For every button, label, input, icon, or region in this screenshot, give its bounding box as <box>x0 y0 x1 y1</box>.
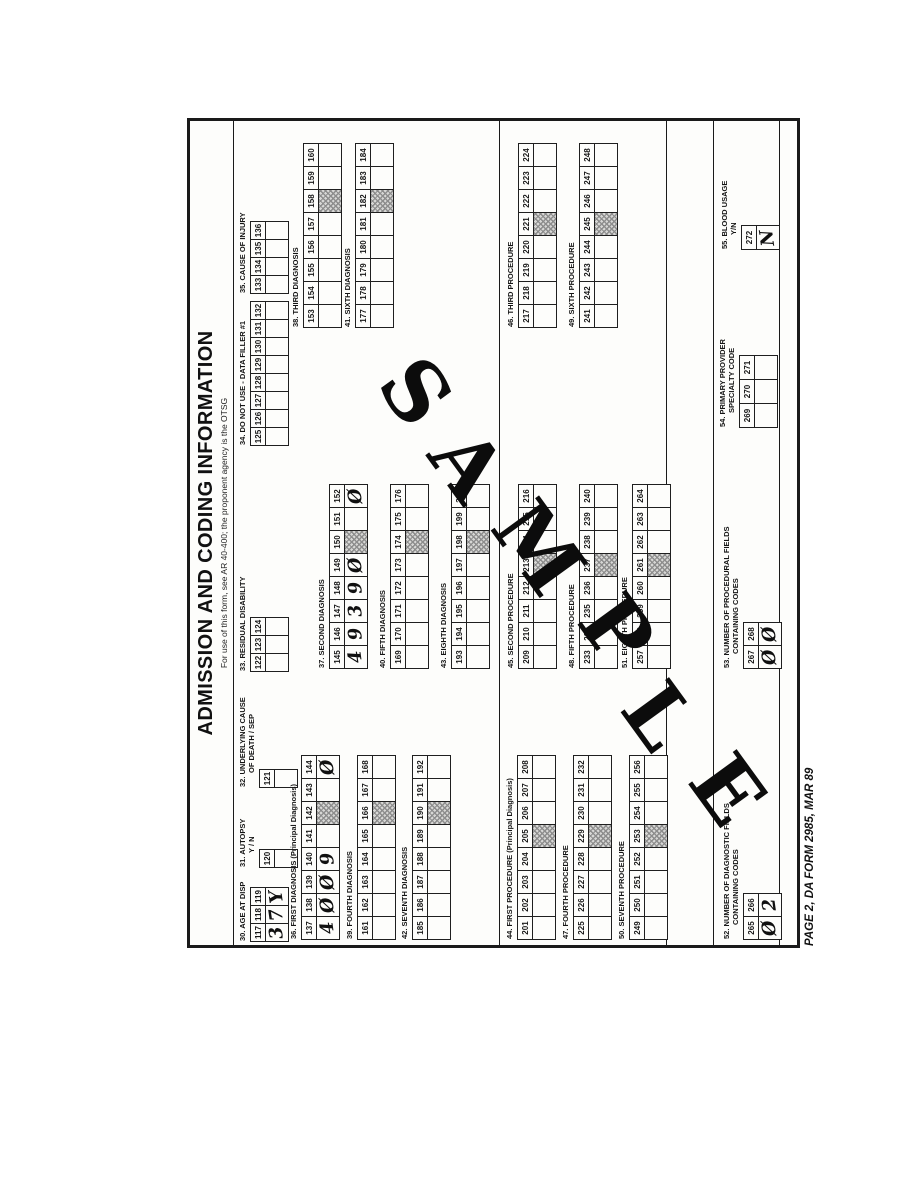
cell-170: 170 <box>390 622 429 646</box>
cell-246-entry <box>594 189 618 213</box>
cell-263-number: 263 <box>632 507 648 531</box>
cell-269-entry <box>754 403 778 428</box>
cell-227-entry <box>588 870 612 894</box>
block-39-label: 39. FOURTH DIAGNOSIS <box>345 755 354 939</box>
cell-137: 1374 <box>301 916 340 940</box>
cell-179: 179 <box>355 258 394 282</box>
cell-151: 151 <box>329 507 368 531</box>
cell-160-number: 160 <box>303 143 319 167</box>
block-39-cells: 161162163164165166167168 <box>357 755 396 939</box>
cell-134-number: 134 <box>250 257 266 276</box>
block-31-label-line2: Y / N <box>247 819 256 853</box>
cell-136-entry <box>265 221 289 240</box>
block-54-label-line2: SPECIALTY CODE <box>727 339 736 413</box>
cell-202-entry <box>532 893 556 917</box>
block-38-label: 38. THIRD DIAGNOSIS <box>291 143 300 327</box>
scanned-form-page: ADMISSION AND CODING INFORMATION For use… <box>0 0 918 1188</box>
cell-209-entry <box>533 645 557 669</box>
block-53-label: 53. NUMBER OF PROCEDURAL FIELDS <box>722 526 731 668</box>
cell-137-number: 137 <box>301 916 317 940</box>
cell-144-entry: Ø <box>316 755 340 779</box>
cell-251: 251 <box>629 870 668 894</box>
block-47: 47. FOURTH PROCEDURE22522622722822923023… <box>561 755 612 939</box>
cell-254-number: 254 <box>629 801 645 825</box>
cell-223-number: 223 <box>518 166 534 190</box>
cell-231: 231 <box>573 778 612 802</box>
block-52-cells: 265Ø2662 <box>743 803 782 939</box>
cell-206-entry <box>532 801 556 825</box>
cell-139-entry: Ø <box>316 870 340 894</box>
cell-117: 1173 <box>250 923 289 942</box>
cell-180-entry <box>370 235 394 259</box>
block-36-label: 36. FIRST DIAGNOSIS (Principal Diagnosis… <box>289 755 298 939</box>
block-38-cells: 153154155156157158159160 <box>303 143 342 327</box>
cell-167: 167 <box>357 778 396 802</box>
cell-250-number: 250 <box>629 893 645 917</box>
cell-224-number: 224 <box>518 143 534 167</box>
cell-148: 1489 <box>329 576 368 600</box>
block-38: 38. THIRD DIAGNOSIS153154155156157158159… <box>291 143 342 327</box>
cell-261-entry-hatched <box>647 553 671 577</box>
cell-209-number: 209 <box>518 645 534 669</box>
cell-245-entry-hatched <box>594 212 618 236</box>
cell-267: 267Ø <box>743 645 782 669</box>
cell-147-value: 3 <box>344 603 368 618</box>
cell-169-entry <box>405 645 429 669</box>
cell-134-entry <box>265 257 289 276</box>
cell-144: 144Ø <box>301 755 340 779</box>
cell-130: 130 <box>250 337 289 356</box>
cell-202: 202 <box>517 893 556 917</box>
cell-255: 255 <box>629 778 668 802</box>
cell-163-entry <box>372 870 396 894</box>
cell-168-number: 168 <box>357 755 373 779</box>
cell-139-number: 139 <box>301 870 317 894</box>
cell-262-entry <box>647 530 671 554</box>
cell-145-number: 145 <box>329 645 345 669</box>
cell-154-entry <box>318 281 342 305</box>
cell-123-entry <box>265 635 289 654</box>
cell-188-number: 188 <box>412 847 428 871</box>
cell-247: 247 <box>579 166 618 190</box>
cell-129-number: 129 <box>250 355 266 374</box>
block-55: 55. BLOOD USAGEY/N272N <box>720 181 780 249</box>
cell-262-number: 262 <box>632 530 648 554</box>
cell-224: 224 <box>518 143 557 167</box>
cell-245-number: 245 <box>579 212 595 236</box>
cell-126: 126 <box>250 409 289 428</box>
cell-230-number: 230 <box>573 801 589 825</box>
cell-266-number: 266 <box>743 893 759 917</box>
cell-135-number: 135 <box>250 239 266 258</box>
cell-139-value: Ø <box>316 873 340 892</box>
cell-198-number: 198 <box>451 530 467 554</box>
block-33-label: 33. RESIDUAL DISABILITY <box>238 577 247 671</box>
block-46-cells: 217218219220221222223224 <box>518 143 557 327</box>
cell-169-number: 169 <box>390 645 406 669</box>
cell-248-entry <box>594 143 618 167</box>
cell-196-number: 196 <box>451 576 467 600</box>
cell-164-entry <box>372 847 396 871</box>
block-41: 41. SIXTH DIAGNOSIS177178179180181182183… <box>343 143 394 327</box>
cell-193: 193 <box>451 645 490 669</box>
cell-191-number: 191 <box>412 778 428 802</box>
cell-190-entry-hatched <box>427 801 451 825</box>
cell-230: 230 <box>573 801 612 825</box>
cell-126-entry <box>265 409 289 428</box>
cell-210: 210 <box>518 622 557 646</box>
cell-128-entry <box>265 373 289 392</box>
block-55-cells: 272N <box>741 181 780 249</box>
cell-261-number: 261 <box>632 553 648 577</box>
cell-177-number: 177 <box>355 304 371 328</box>
cell-172: 172 <box>390 576 429 600</box>
rule-under-header <box>233 121 234 945</box>
cell-263-entry <box>647 507 671 531</box>
cell-270-entry <box>754 379 778 404</box>
cell-244-number: 244 <box>579 235 595 259</box>
cell-194: 194 <box>451 622 490 646</box>
cell-124: 124 <box>250 617 289 636</box>
cell-123-number: 123 <box>250 635 266 654</box>
cell-183-entry <box>370 166 394 190</box>
cell-182: 182 <box>355 189 394 213</box>
block-34-label: 34. DO NOT USE - DATA FILLER #1 <box>238 301 247 445</box>
cell-268-value: Ø <box>758 625 782 644</box>
cell-242-number: 242 <box>579 281 595 305</box>
cell-189-number: 189 <box>412 824 428 848</box>
cell-257-entry <box>647 645 671 669</box>
cell-167-number: 167 <box>357 778 373 802</box>
cell-252: 252 <box>629 847 668 871</box>
cell-219: 219 <box>518 258 557 282</box>
cell-149-value: Ø <box>344 556 368 575</box>
block-40-cells: 169170171172173174175176 <box>390 484 429 668</box>
cell-268-entry: Ø <box>758 622 782 646</box>
cell-231-number: 231 <box>573 778 589 802</box>
cell-265-number: 265 <box>743 916 759 940</box>
block-54-label: 54. PRIMARY PROVIDER <box>718 339 727 427</box>
cell-137-value: 4 <box>316 920 340 935</box>
cell-149-entry: Ø <box>344 553 368 577</box>
cell-140-entry: 9 <box>316 847 340 871</box>
cell-244: 244 <box>579 235 618 259</box>
block-55-label: 55. BLOOD USAGE <box>720 181 729 249</box>
cell-239: 239 <box>579 507 618 531</box>
cell-190-number: 190 <box>412 801 428 825</box>
cell-163: 163 <box>357 870 396 894</box>
cell-156-number: 156 <box>303 235 319 259</box>
cell-220: 220 <box>518 235 557 259</box>
block-44: 44. FIRST PROCEDURE (Principal Diagnosis… <box>505 755 556 939</box>
cell-177: 177 <box>355 304 394 328</box>
cell-232-entry <box>588 755 612 779</box>
cell-196: 196 <box>451 576 490 600</box>
cell-144-number: 144 <box>301 755 317 779</box>
cell-161-entry <box>372 916 396 940</box>
cell-218-entry <box>533 281 557 305</box>
cell-168: 168 <box>357 755 396 779</box>
block-31-label: 31. AUTOPSY <box>238 819 247 867</box>
cell-222-number: 222 <box>518 189 534 213</box>
block-53: 53. NUMBER OF PROCEDURAL FIELDSCONTAININ… <box>722 526 782 668</box>
cell-174: 174 <box>390 530 429 554</box>
block-34: 34. DO NOT USE - DATA FILLER #1125126127… <box>238 301 289 445</box>
cell-270-number: 270 <box>739 379 755 404</box>
cell-192-entry <box>427 755 451 779</box>
form-subtitle: For use of this form, see AR 40-400; the… <box>219 121 229 945</box>
cell-117-number: 117 <box>250 923 266 942</box>
cell-186-entry <box>427 893 451 917</box>
cell-120-number: 120 <box>259 849 275 868</box>
cell-250-entry <box>644 893 668 917</box>
block-30-cells: 11731187119Y <box>250 882 289 941</box>
cell-243-entry <box>594 258 618 282</box>
cell-253-number: 253 <box>629 824 645 848</box>
cell-223: 223 <box>518 166 557 190</box>
cell-175-number: 175 <box>390 507 406 531</box>
cell-184: 184 <box>355 143 394 167</box>
cell-272-value: N <box>756 228 780 247</box>
cell-224-entry <box>533 143 557 167</box>
cell-243: 243 <box>579 258 618 282</box>
cell-201: 201 <box>517 916 556 940</box>
cell-197-number: 197 <box>451 553 467 577</box>
cell-146-value: 9 <box>344 626 368 641</box>
cell-179-number: 179 <box>355 258 371 282</box>
block-50-cells: 249250251252253254255256 <box>629 755 668 939</box>
cell-151-number: 151 <box>329 507 345 531</box>
block-35-cells: 133134135136 <box>250 212 289 293</box>
cell-162-number: 162 <box>357 893 373 917</box>
cell-130-entry <box>265 337 289 356</box>
cell-262: 262 <box>632 530 671 554</box>
cell-119-value: Y <box>265 889 289 905</box>
cell-162: 162 <box>357 893 396 917</box>
block-50: 50. SEVENTH PROCEDURE2492502512522532542… <box>617 755 668 939</box>
cell-241: 241 <box>579 304 618 328</box>
cell-172-entry <box>405 576 429 600</box>
cell-267-number: 267 <box>743 645 759 669</box>
cell-225: 225 <box>573 916 612 940</box>
cell-148-entry: 9 <box>344 576 368 600</box>
cell-140: 1409 <box>301 847 340 871</box>
block-30: 30. AGE AT DISP11731187119Y <box>238 882 289 941</box>
cell-201-number: 201 <box>517 916 533 940</box>
cell-128-number: 128 <box>250 373 266 392</box>
cell-261: 261 <box>632 553 671 577</box>
block-50-label: 50. SEVENTH PROCEDURE <box>617 755 626 939</box>
cell-271-number: 271 <box>739 355 755 380</box>
cell-171-number: 171 <box>390 599 406 623</box>
cell-246-number: 246 <box>579 189 595 213</box>
cell-166-number: 166 <box>357 801 373 825</box>
cell-182-entry-hatched <box>370 189 394 213</box>
cell-188: 188 <box>412 847 451 871</box>
cell-189: 189 <box>412 824 451 848</box>
cell-156: 156 <box>303 235 342 259</box>
cell-209: 209 <box>518 645 557 669</box>
cell-255-number: 255 <box>629 778 645 802</box>
cell-243-number: 243 <box>579 258 595 282</box>
cell-158: 158 <box>303 189 342 213</box>
block-49: 49. SIXTH PROCEDURE241242243244245246247… <box>567 143 618 327</box>
block-42: 42. SEVENTH DIAGNOSIS1851861871881891901… <box>400 755 451 939</box>
cell-204-entry <box>532 847 556 871</box>
cell-248: 248 <box>579 143 618 167</box>
block-42-cells: 185186187188189190191192 <box>412 755 451 939</box>
cell-182-number: 182 <box>355 189 371 213</box>
cell-118-entry: 7 <box>265 905 289 924</box>
cell-141-number: 141 <box>301 824 317 848</box>
cell-264-entry <box>647 484 671 508</box>
cell-118-value: 7 <box>265 907 289 922</box>
cell-192: 192 <box>412 755 451 779</box>
cell-269-number: 269 <box>739 403 755 428</box>
cell-242-entry <box>594 281 618 305</box>
cell-191: 191 <box>412 778 451 802</box>
cell-251-number: 251 <box>629 870 645 894</box>
cell-131-number: 131 <box>250 319 266 338</box>
cell-272-entry: N <box>756 225 780 250</box>
cell-138-entry: Ø <box>316 893 340 917</box>
cell-221: 221 <box>518 212 557 236</box>
cell-202-number: 202 <box>517 893 533 917</box>
cell-125-number: 125 <box>250 427 266 446</box>
cell-189-entry <box>427 824 451 848</box>
block-49-label: 49. SIXTH PROCEDURE <box>567 143 576 327</box>
cell-254-entry <box>644 801 668 825</box>
cell-142-entry-hatched <box>316 801 340 825</box>
cell-175: 175 <box>390 507 429 531</box>
cell-231-entry <box>588 778 612 802</box>
cell-269: 269 <box>739 403 778 428</box>
cell-152-value: Ø <box>344 487 368 506</box>
cell-270: 270 <box>739 379 778 404</box>
block-54-cells: 269270271 <box>739 339 778 427</box>
block-40: 40. FIFTH DIAGNOSIS169170171172173174175… <box>378 484 429 668</box>
cell-161: 161 <box>357 916 396 940</box>
cell-155: 155 <box>303 258 342 282</box>
cell-232: 232 <box>573 755 612 779</box>
cell-157: 157 <box>303 212 342 236</box>
cell-150-entry-hatched <box>344 530 368 554</box>
cell-153: 153 <box>303 304 342 328</box>
block-55-label-line2: Y/N <box>729 181 738 235</box>
cell-266-entry: 2 <box>758 893 782 917</box>
block-32-label: 32. UNDERLYING CAUSE <box>238 697 247 787</box>
cell-122-number: 122 <box>250 653 266 672</box>
cell-180-number: 180 <box>355 235 371 259</box>
cell-240-number: 240 <box>579 484 595 508</box>
cell-145-value: 4 <box>344 649 368 664</box>
cell-190: 190 <box>412 801 451 825</box>
cell-141: 141 <box>301 824 340 848</box>
cell-247-number: 247 <box>579 166 595 190</box>
cell-210-number: 210 <box>518 622 534 646</box>
cell-239-entry <box>594 507 618 531</box>
block-30-label: 30. AGE AT DISP <box>238 882 247 941</box>
cell-223-entry <box>533 166 557 190</box>
cell-153-number: 153 <box>303 304 319 328</box>
cell-268: 268Ø <box>743 622 782 646</box>
cell-247-entry <box>594 166 618 190</box>
cell-123: 123 <box>250 635 289 654</box>
cell-138-value: Ø <box>316 896 340 915</box>
cell-132: 132 <box>250 301 289 320</box>
block-36: 36. FIRST DIAGNOSIS (Principal Diagnosis… <box>289 755 340 939</box>
cell-193-entry <box>466 645 490 669</box>
cell-194-number: 194 <box>451 622 467 646</box>
cell-146-number: 146 <box>329 622 345 646</box>
cell-264-number: 264 <box>632 484 648 508</box>
cell-249: 249 <box>629 916 668 940</box>
cell-272: 272N <box>741 225 780 250</box>
cell-236-number: 236 <box>579 576 595 600</box>
block-53-label-line2: CONTAINING CODES <box>731 526 740 654</box>
cell-205-number: 205 <box>517 824 533 848</box>
cell-160: 160 <box>303 143 342 167</box>
cell-118-number: 118 <box>250 905 266 924</box>
cell-146: 1469 <box>329 622 368 646</box>
cell-220-entry <box>533 235 557 259</box>
block-41-cells: 177178179180181182183184 <box>355 143 394 327</box>
cell-130-number: 130 <box>250 337 266 356</box>
cell-170-number: 170 <box>390 622 406 646</box>
cell-199-entry <box>466 507 490 531</box>
block-46: 46. THIRD PROCEDURE217218219220221222223… <box>506 143 557 327</box>
cell-193-number: 193 <box>451 645 467 669</box>
cell-228-entry <box>588 847 612 871</box>
cell-174-number: 174 <box>390 530 406 554</box>
cell-225-entry <box>588 916 612 940</box>
cell-137-entry: 4 <box>316 916 340 940</box>
cell-133-number: 133 <box>250 275 266 294</box>
cell-191-entry <box>427 778 451 802</box>
cell-185: 185 <box>412 916 451 940</box>
cell-165-number: 165 <box>357 824 373 848</box>
cell-267-value: Ø <box>758 648 782 667</box>
cell-205: 205 <box>517 824 556 848</box>
cell-163-number: 163 <box>357 870 373 894</box>
cell-210-entry <box>533 622 557 646</box>
cell-152-entry: Ø <box>344 484 368 508</box>
cell-179-entry <box>370 258 394 282</box>
cell-129-entry <box>265 355 289 374</box>
form-title: ADMISSION AND CODING INFORMATION <box>195 121 218 945</box>
cell-203: 203 <box>517 870 556 894</box>
cell-131-entry <box>265 319 289 338</box>
cell-140-value: 9 <box>316 851 340 866</box>
cell-159: 159 <box>303 166 342 190</box>
cell-159-number: 159 <box>303 166 319 190</box>
block-36-cells: 1374138Ø139Ø1409141142143144Ø <box>301 755 340 939</box>
block-32-label-line2: OF DEATH / SEP <box>247 697 256 773</box>
block-37-label: 37. SECOND DIAGNOSIS <box>317 484 326 668</box>
cell-139: 139Ø <box>301 870 340 894</box>
cell-229: 229 <box>573 824 612 848</box>
cell-252-number: 252 <box>629 847 645 871</box>
cell-253: 253 <box>629 824 668 848</box>
cell-263: 263 <box>632 507 671 531</box>
cell-177-entry <box>370 304 394 328</box>
cell-119-entry: Y <box>265 887 289 906</box>
cell-142-number: 142 <box>301 801 317 825</box>
cell-266: 2662 <box>743 893 782 917</box>
cell-206-number: 206 <box>517 801 533 825</box>
cell-167-entry <box>372 778 396 802</box>
cell-176-number: 176 <box>390 484 406 508</box>
